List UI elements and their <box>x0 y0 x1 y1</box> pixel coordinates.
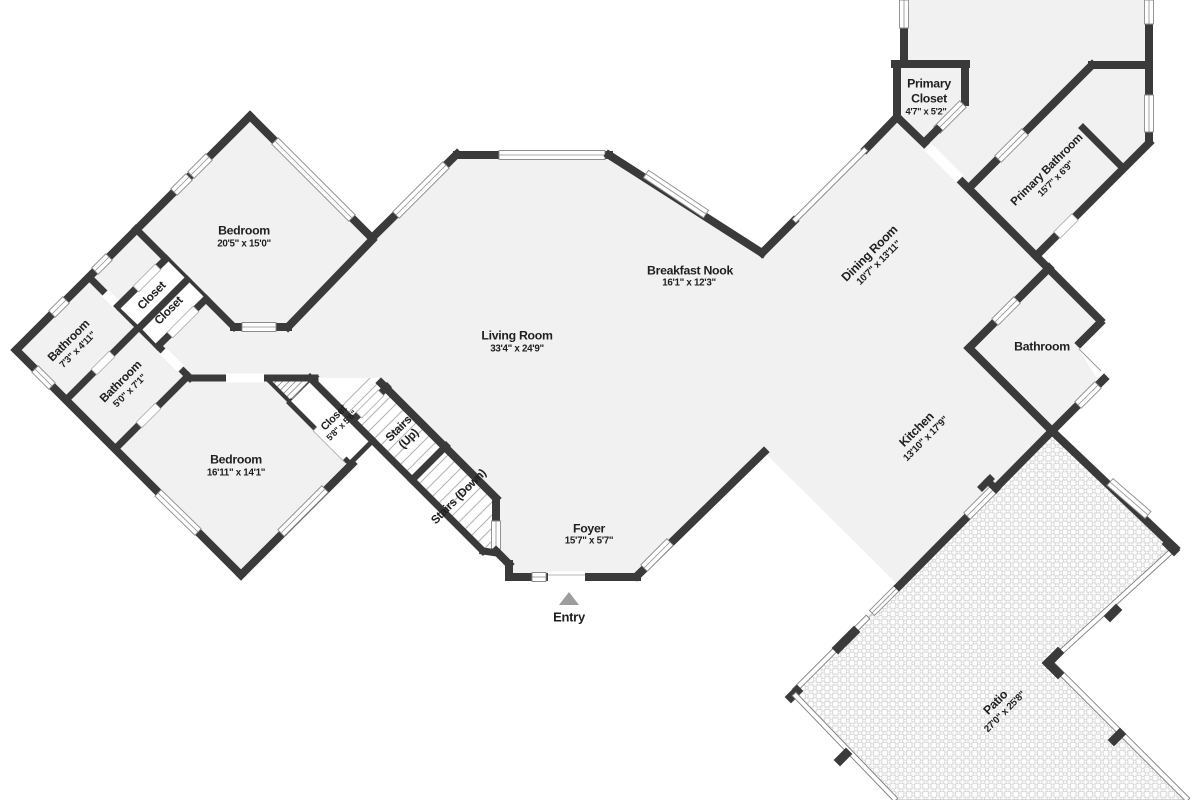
svg-text:16'1" x 12'3": 16'1" x 12'3" <box>662 278 716 289</box>
svg-text:Foyer: Foyer <box>573 521 606 535</box>
svg-text:Entry: Entry <box>553 609 586 624</box>
svg-text:Bedroom: Bedroom <box>210 452 262 466</box>
svg-text:4'7" x 5'2": 4'7" x 5'2" <box>906 106 947 116</box>
svg-text:Living Room: Living Room <box>481 328 553 342</box>
svg-text:20'5" x 15'0": 20'5" x 15'0" <box>217 239 271 250</box>
svg-text:Breakfast Nook: Breakfast Nook <box>647 263 733 277</box>
svg-text:Primary: Primary <box>907 76 951 90</box>
svg-text:15'7" x 5'7": 15'7" x 5'7" <box>565 536 614 547</box>
svg-text:Bathroom: Bathroom <box>1014 339 1070 353</box>
svg-text:33'4" x 24'9": 33'4" x 24'9" <box>490 344 544 355</box>
svg-text:Bedroom: Bedroom <box>218 223 270 237</box>
svg-text:Closet: Closet <box>911 91 947 105</box>
svg-text:16'11" x 14'1": 16'11" x 14'1" <box>207 468 265 479</box>
